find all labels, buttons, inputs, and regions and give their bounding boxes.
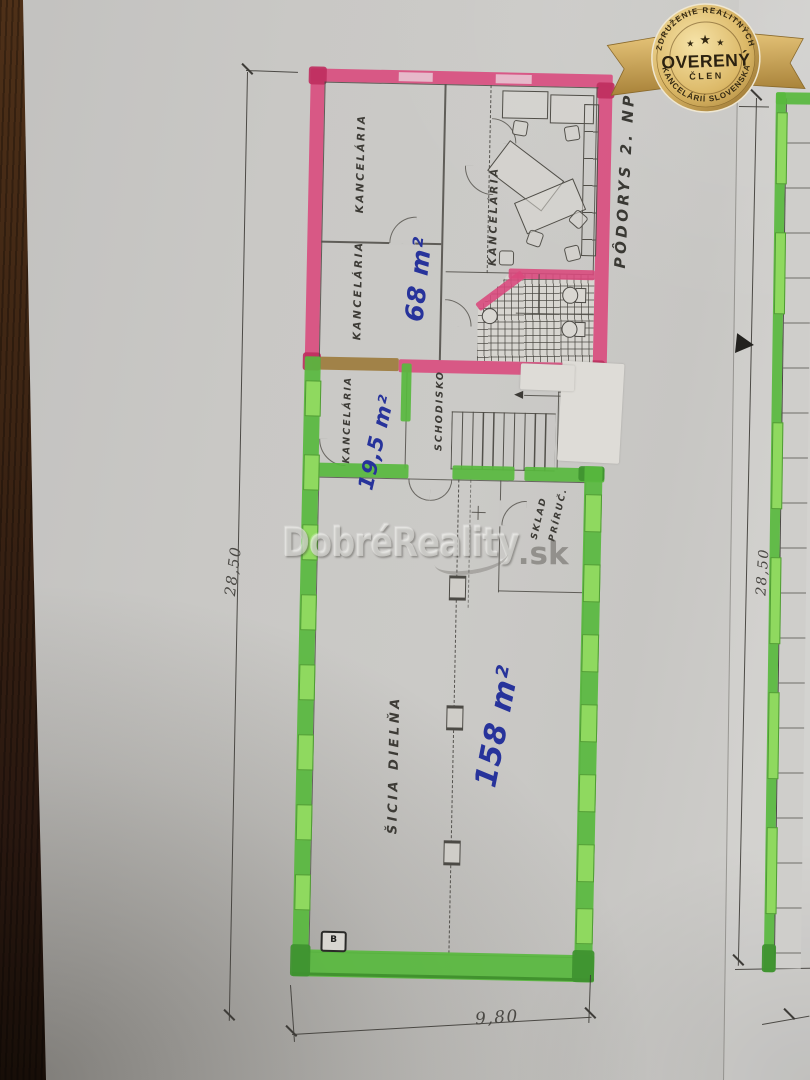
photo-of-floorplan: B KANCELÁRIA KANCELÁRIA KANCELÁRIA KANCE…	[0, 0, 810, 1080]
shelf-cabinet	[581, 104, 599, 256]
window-segment	[771, 422, 783, 509]
door-swing-arc	[445, 299, 473, 327]
window-segment	[766, 827, 778, 914]
room-label-office-green: KANCELÁRIA	[341, 374, 354, 466]
badge-subtitle: ČLEN	[689, 69, 724, 81]
verified-badge: ZDRUŽENIE REALITNÝCH KANCELÁRIÍ SLOVENSK…	[598, 0, 810, 134]
window-segment	[577, 844, 595, 882]
column-symbol	[443, 840, 461, 865]
window-segment	[581, 634, 599, 672]
chair	[564, 244, 582, 262]
window-segment	[303, 454, 320, 490]
room-label-staircase: SCHODISKO	[433, 367, 446, 453]
window-segment	[296, 804, 313, 840]
window-segment	[580, 704, 598, 742]
window-segment	[584, 494, 602, 532]
window-segment	[769, 557, 781, 644]
window-segment	[774, 232, 786, 314]
window-segment	[399, 72, 433, 82]
correction-patch	[520, 363, 575, 391]
chair	[499, 250, 514, 265]
room-label-office-top-left: KANCELÁRIA	[354, 98, 369, 228]
badge-star-icon: ★	[716, 38, 724, 48]
watermark-tld: .sk	[518, 536, 569, 572]
window-segment	[294, 874, 311, 910]
toilet-icon	[559, 320, 585, 338]
room-label-office-bottom-left: KANCELÁRIA	[351, 235, 365, 345]
window-segment	[583, 564, 601, 602]
wall-overlap-tan	[313, 356, 399, 371]
toilet-icon	[560, 286, 586, 304]
wall-corner	[290, 944, 311, 976]
watermark: DobréReality.sk	[282, 520, 569, 572]
window-segment	[496, 74, 532, 84]
window-segment	[305, 380, 322, 416]
window-segment	[297, 734, 314, 770]
window-segment	[576, 908, 594, 944]
desk	[502, 90, 549, 119]
wall-corner	[572, 950, 595, 982]
room-label-office-right: KANCELÁRIA	[487, 161, 501, 271]
column-symbol	[449, 575, 467, 600]
badge-star-icon: ★	[699, 33, 711, 48]
window-segment	[300, 594, 317, 630]
chair	[564, 125, 581, 142]
north-arrow-icon	[735, 333, 755, 355]
wall-green	[452, 465, 514, 480]
marker-b-label: B	[330, 935, 337, 945]
window-segment	[767, 692, 779, 779]
radiator-marker: B	[320, 931, 346, 953]
badge-star-icon: ★	[686, 39, 694, 49]
area-note-68: 68 m²	[399, 233, 438, 326]
window-segment	[578, 774, 596, 812]
chair	[512, 120, 529, 137]
chair	[525, 229, 544, 248]
wall-green-segment	[401, 363, 412, 421]
column-symbol	[446, 705, 464, 730]
staircase-treads	[451, 411, 556, 471]
stair-direction-arrow-icon	[514, 391, 523, 399]
badge-title: OVERENÝ	[661, 48, 751, 72]
window-segment	[299, 664, 316, 700]
wall-corner	[762, 944, 776, 972]
